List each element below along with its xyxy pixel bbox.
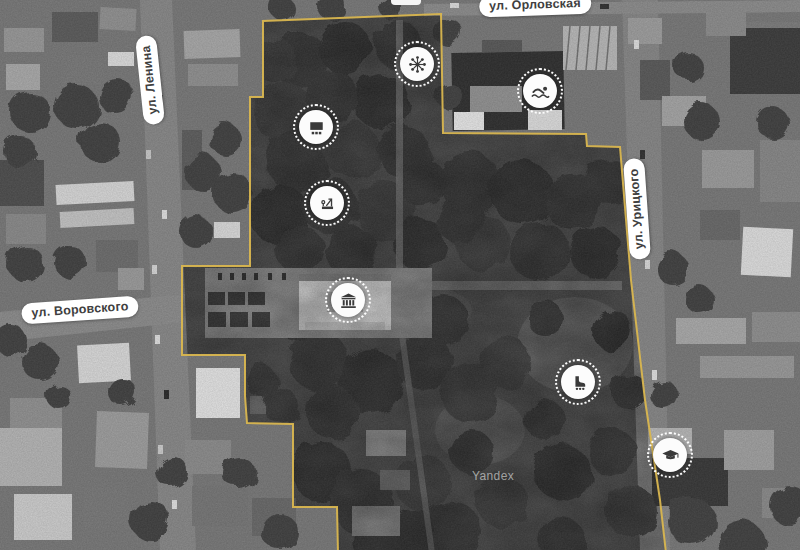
marker-playground[interactable]	[304, 180, 350, 226]
marker-attractions[interactable]	[394, 41, 440, 87]
partial-street-label	[391, 0, 421, 5]
swimmer-icon	[523, 74, 557, 108]
cinema-screen-icon	[299, 110, 333, 144]
marker-philharmonic[interactable]	[325, 277, 371, 323]
ferris-wheel-icon	[400, 47, 434, 81]
marker-summer-cinema[interactable]	[293, 104, 339, 150]
yandex-watermark: Yandex	[472, 469, 514, 483]
classical-building-icon	[331, 283, 365, 317]
marker-education[interactable]	[647, 432, 693, 478]
playground-icon	[310, 186, 344, 220]
satellite-map[interactable]: ул. Орловская ул. Ленина ул. Воровского …	[0, 0, 800, 550]
marker-swimming-pool[interactable]	[517, 68, 563, 114]
roller-skate-icon	[561, 365, 595, 399]
graduation-cap-icon	[653, 438, 687, 472]
marker-rollerdrome[interactable]	[555, 359, 601, 405]
